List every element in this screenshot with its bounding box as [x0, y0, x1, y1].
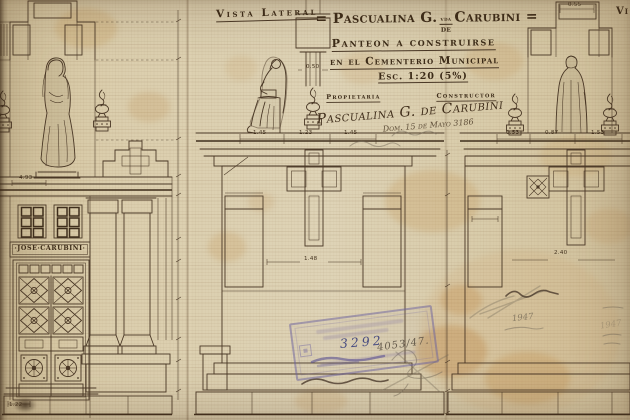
side-wing-cross-cap: [103, 141, 168, 177]
dimension-label: 1.45: [344, 130, 357, 136]
cornice-band-right: [460, 133, 630, 156]
subtitle-line1: Panteon a construirse: [332, 35, 496, 52]
rosette-relief: [527, 176, 549, 198]
mourning-statue-profile: [247, 57, 287, 133]
view-label-partial: Vi: [616, 6, 629, 17]
dimension-label: 1.53: [591, 130, 604, 136]
cornice-band: [196, 133, 444, 156]
title-block: = Pascualina G.vdadeCarubini = Panteon a…: [315, 9, 530, 129]
dimension-label: 0.50: [306, 64, 319, 70]
dimension-label: 0.55: [568, 2, 581, 8]
scale-note: Esc. 1:20 (5%): [378, 70, 468, 83]
dimension-label: 2.40: [554, 250, 567, 256]
dimension-label: 1.48: [304, 256, 317, 262]
flame-urn-rear-right: [602, 94, 619, 135]
view-label-lateral: Vista Lateral: [216, 6, 318, 23]
dimension-label: 0.87: [545, 130, 558, 136]
cross-relief-lateral: [267, 150, 361, 265]
dimension-label: 0.53: [506, 130, 519, 136]
dimension-label: 1.45: [253, 130, 266, 136]
fold-crease: [186, 0, 191, 420]
subtitle-line2: en el Cementerio Municipal: [330, 54, 499, 70]
mourning-statue-front: [34, 58, 80, 178]
dimension-label: 1.23: [299, 130, 312, 136]
rear-wall: [465, 156, 630, 363]
shrouded-statue-rear: [554, 56, 588, 133]
stamp-emblem-icon: [299, 344, 312, 357]
drawing-sheet: Vista Lateral Vi = Pascualina G.vdadeCar…: [0, 0, 630, 420]
sheet-edge-shadow: [0, 0, 8, 420]
cross-relief-rear: [512, 150, 615, 260]
flame-urn-left-panel: [94, 90, 111, 131]
front-elevation-drawing: [0, 1, 181, 418]
title-part1: = Pascualina G.: [315, 10, 437, 27]
door-nameplate: ·JOSE·CARUBINI·: [11, 245, 89, 252]
title-part2: Carubini =: [454, 9, 538, 26]
fluted-columns: [84, 177, 172, 354]
dimension-label: 1.22: [9, 402, 22, 408]
title-vda-de: vdade: [440, 18, 453, 33]
owner-label: Propietaria: [326, 92, 380, 103]
drawing-title: = Pascualina G.vdadeCarubini =: [315, 9, 529, 34]
dimension-label: 4.93: [19, 175, 32, 181]
rear-base: [446, 363, 630, 415]
facade-windows: [18, 205, 82, 238]
